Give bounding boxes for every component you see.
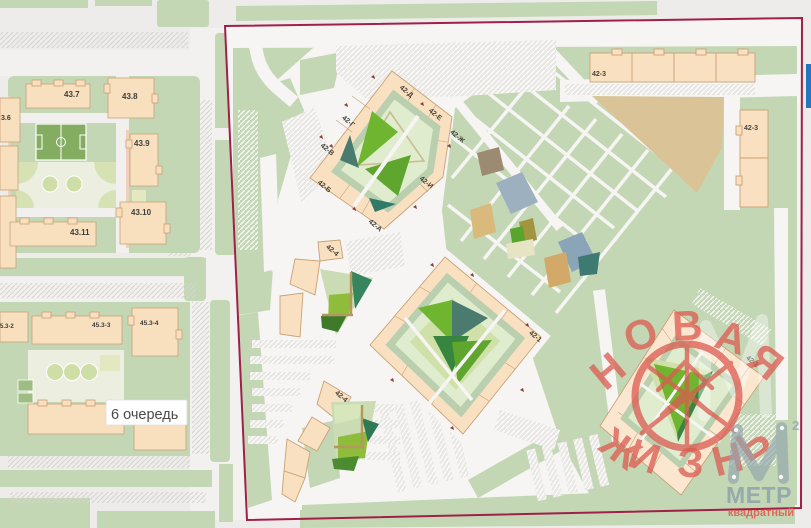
svg-text:43.7: 43.7	[64, 90, 80, 99]
svg-text:квадратный: квадратный	[728, 507, 794, 519]
svg-text:42-3: 42-3	[744, 125, 758, 132]
svg-text:45.3-4: 45.3-4	[140, 320, 159, 327]
svg-text:43.8: 43.8	[122, 92, 138, 101]
svg-text:МЕТР: МЕТР	[726, 482, 792, 508]
svg-text:2: 2	[792, 418, 799, 433]
svg-text:45.3-3: 45.3-3	[92, 322, 111, 329]
svg-text:5.3-2: 5.3-2	[0, 324, 14, 330]
svg-text:З: З	[677, 439, 705, 487]
svg-text:43.9: 43.9	[134, 139, 150, 148]
svg-text:42-3: 42-3	[592, 71, 606, 78]
svg-text:6 очередь: 6 очередь	[111, 407, 178, 423]
svg-text:В: В	[671, 301, 704, 350]
svg-text:43.10: 43.10	[131, 208, 152, 217]
svg-text:3.6: 3.6	[1, 115, 11, 122]
svg-text:43.11: 43.11	[70, 228, 90, 237]
